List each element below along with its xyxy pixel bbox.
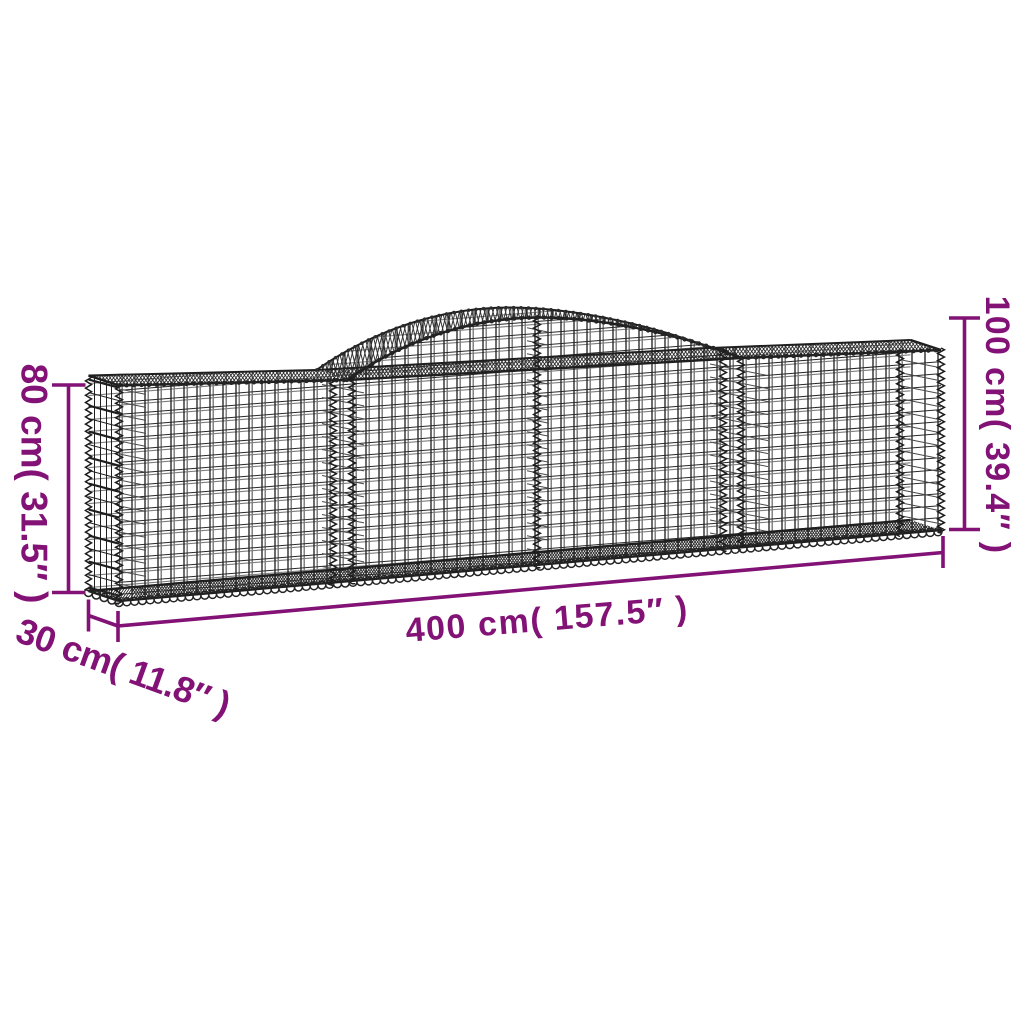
svg-text:100 cm( 39.4″ ): 100 cm( 39.4″ ): [978, 296, 1016, 555]
svg-text:80 cm( 31.5″ ): 80 cm( 31.5″ ): [13, 364, 54, 604]
